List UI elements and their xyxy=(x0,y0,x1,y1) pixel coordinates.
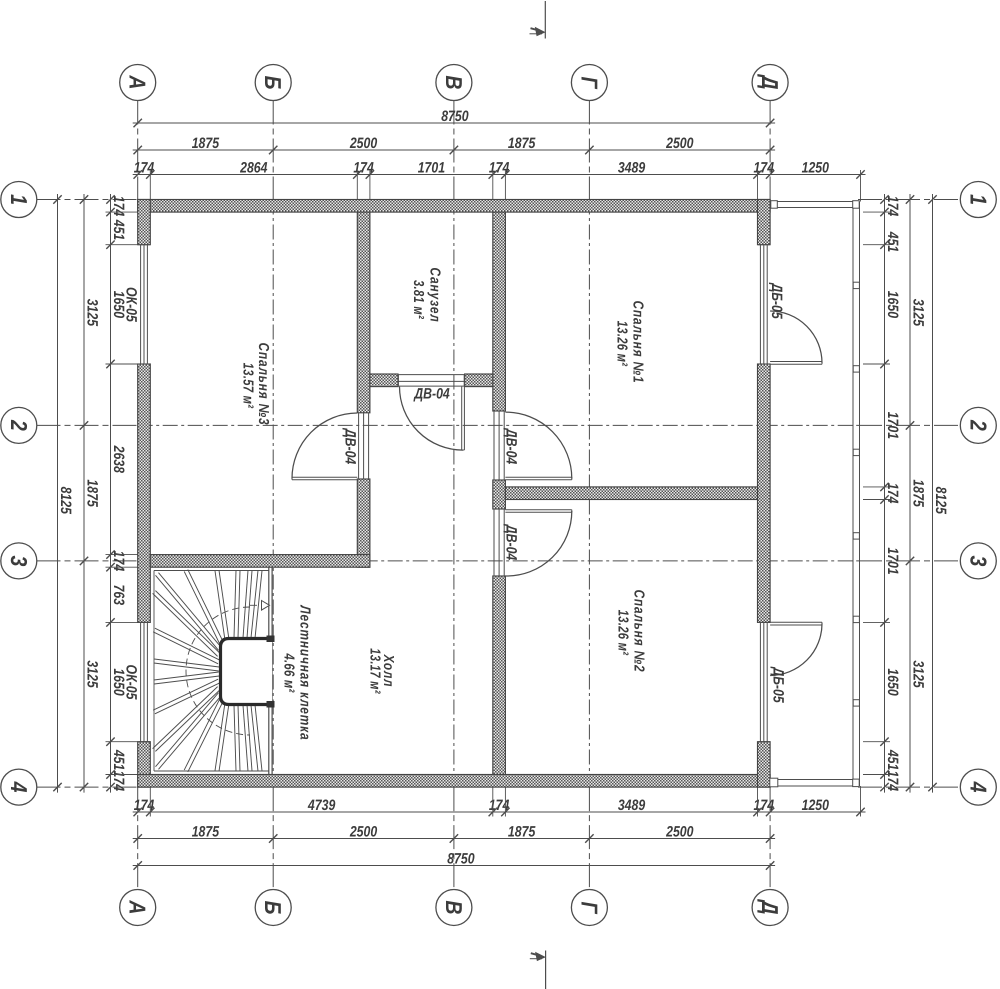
svg-text:В: В xyxy=(441,900,467,914)
svg-text:3: 3 xyxy=(6,555,32,566)
svg-text:3489: 3489 xyxy=(618,160,646,177)
svg-text:8125: 8125 xyxy=(57,487,74,515)
svg-text:13.26 м²: 13.26 м² xyxy=(615,610,631,656)
svg-text:1875: 1875 xyxy=(910,479,927,507)
svg-text:451: 451 xyxy=(884,231,901,252)
svg-text:174: 174 xyxy=(754,160,775,177)
svg-text:1875: 1875 xyxy=(192,824,220,841)
svg-text:174: 174 xyxy=(353,160,374,177)
svg-text:4.66 м²: 4.66 м² xyxy=(281,653,297,693)
svg-text:3125: 3125 xyxy=(84,299,101,327)
svg-text:Г: Г xyxy=(576,901,602,914)
svg-text:174: 174 xyxy=(884,483,901,504)
svg-text:8750: 8750 xyxy=(447,851,475,868)
svg-text:Б: Б xyxy=(260,901,286,915)
svg-text:ОК-05: ОК-05 xyxy=(123,665,140,700)
svg-text:1875: 1875 xyxy=(84,479,101,507)
svg-text:Д: Д xyxy=(757,74,783,90)
svg-text:В: В xyxy=(441,75,467,89)
svg-text:3: 3 xyxy=(965,555,991,566)
svg-text:174: 174 xyxy=(110,196,127,217)
svg-text:13.17 м²: 13.17 м² xyxy=(367,648,383,694)
svg-text:1250: 1250 xyxy=(802,160,830,177)
svg-text:174: 174 xyxy=(110,551,127,572)
svg-text:2500: 2500 xyxy=(349,824,378,841)
svg-text:А: А xyxy=(125,900,151,915)
svg-text:1: 1 xyxy=(6,194,32,205)
svg-text:4739: 4739 xyxy=(307,797,336,814)
svg-text:Спальня №2: Спальня №2 xyxy=(630,590,646,673)
svg-text:А: А xyxy=(125,75,151,90)
svg-text:8125: 8125 xyxy=(932,487,949,515)
svg-text:Б: Б xyxy=(260,76,286,90)
svg-text:ОК-05: ОК-05 xyxy=(123,287,140,322)
svg-text:ДВ-04: ДВ-04 xyxy=(503,427,520,465)
svg-text:3125: 3125 xyxy=(910,299,927,327)
svg-text:2500: 2500 xyxy=(665,824,694,841)
svg-text:2: 2 xyxy=(6,419,32,431)
svg-text:174: 174 xyxy=(134,797,155,814)
svg-text:4: 4 xyxy=(965,781,991,793)
svg-text:174: 174 xyxy=(754,797,775,814)
svg-text:1875: 1875 xyxy=(508,824,536,841)
svg-text:ДВ-04: ДВ-04 xyxy=(342,427,359,465)
svg-text:13.57 м²: 13.57 м² xyxy=(239,363,255,409)
svg-text:ДВ-04: ДВ-04 xyxy=(503,523,520,561)
svg-text:3489: 3489 xyxy=(618,797,646,814)
svg-text:Г: Г xyxy=(576,76,602,89)
svg-text:Санузел: Санузел xyxy=(426,267,442,322)
svg-text:1701: 1701 xyxy=(418,160,445,177)
svg-text:451: 451 xyxy=(884,749,901,770)
svg-text:1701: 1701 xyxy=(884,547,901,574)
svg-text:2500: 2500 xyxy=(665,135,694,152)
svg-text:1650: 1650 xyxy=(884,291,901,319)
svg-text:13.26 м²: 13.26 м² xyxy=(614,321,630,367)
svg-text:174: 174 xyxy=(134,160,155,177)
svg-text:Лестничная клетка: Лестничная клетка xyxy=(297,605,313,741)
svg-text:Спальня №3: Спальня №3 xyxy=(255,343,271,426)
svg-text:1875: 1875 xyxy=(192,135,220,152)
svg-text:174: 174 xyxy=(884,771,901,792)
svg-text:Д: Д xyxy=(757,899,783,915)
svg-text:451: 451 xyxy=(110,219,127,240)
svg-text:3.81 м²: 3.81 м² xyxy=(410,280,426,320)
svg-text:1250: 1250 xyxy=(802,797,830,814)
svg-text:2500: 2500 xyxy=(349,135,378,152)
svg-text:3125: 3125 xyxy=(910,660,927,688)
svg-text:8750: 8750 xyxy=(441,108,469,125)
svg-text:1875: 1875 xyxy=(508,135,536,152)
svg-text:2: 2 xyxy=(965,419,991,431)
svg-text:ДБ-05: ДБ-05 xyxy=(768,282,785,320)
svg-text:1701: 1701 xyxy=(884,412,901,439)
svg-text:763: 763 xyxy=(110,585,127,606)
svg-text:174: 174 xyxy=(489,797,510,814)
svg-text:Спальня №1: Спальня №1 xyxy=(629,301,645,384)
svg-text:174: 174 xyxy=(884,196,901,217)
svg-text:ДБ-05: ДБ-05 xyxy=(770,666,787,704)
svg-text:451: 451 xyxy=(110,749,127,770)
svg-text:1: 1 xyxy=(965,194,991,205)
svg-text:2638: 2638 xyxy=(110,445,127,474)
svg-text:1650: 1650 xyxy=(884,668,901,696)
svg-text:174: 174 xyxy=(110,771,127,792)
svg-text:ДВ-04: ДВ-04 xyxy=(413,386,451,403)
svg-text:4: 4 xyxy=(6,781,32,793)
svg-text:174: 174 xyxy=(489,160,510,177)
svg-text:3125: 3125 xyxy=(84,660,101,688)
svg-text:2864: 2864 xyxy=(239,160,268,177)
